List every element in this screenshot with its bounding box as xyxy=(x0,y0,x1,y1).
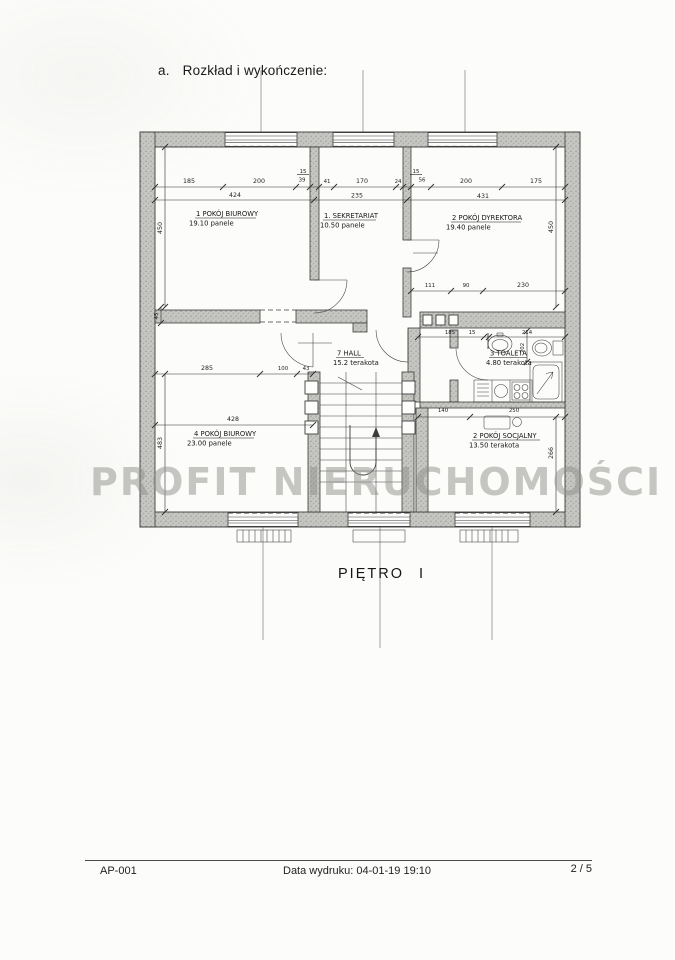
fixtures xyxy=(474,333,563,429)
room-label-title: 2 POKÓJ SOCJALNY xyxy=(473,431,537,440)
dim-label: 185 xyxy=(183,178,195,185)
dim-label: 450 xyxy=(548,221,555,233)
dim-label: 424 xyxy=(229,192,241,199)
room-label-detail: 19.10 panele xyxy=(189,220,234,228)
footer-divider xyxy=(85,860,592,861)
dim-label: 266 xyxy=(548,447,555,459)
dim-label: 24 xyxy=(395,179,402,185)
room-label-title: 1 POKÓJ BIUROWY xyxy=(196,209,259,218)
room-label-title: 2 POKÓJ DYREKTORA xyxy=(452,213,522,222)
floor-plan-drawing: 185 200 15 39 41 170 24 15 56 200 175 42… xyxy=(0,0,675,700)
dim-label: 200 xyxy=(253,178,265,185)
kitchen-sink-icon xyxy=(495,385,508,398)
dim-label: 185 xyxy=(445,330,455,336)
dim-label: 15 xyxy=(413,169,420,175)
dim-label: 450 xyxy=(157,222,164,234)
room-label-detail: 13.50 terakota xyxy=(469,442,519,450)
dim-label: 250 xyxy=(509,408,520,414)
dim-label: 235 xyxy=(351,193,363,200)
room-label-detail: 23.00 panele xyxy=(187,440,232,448)
dim-label: 428 xyxy=(227,416,239,423)
room-label-title: 3 TOALETA xyxy=(490,350,527,358)
dim-label: 111 xyxy=(425,283,435,289)
scanned-document-page: { "document": { "section_heading": {"ind… xyxy=(0,0,675,960)
service-duct xyxy=(449,315,458,325)
toilet-icon xyxy=(533,340,552,356)
interior-walls xyxy=(155,147,565,512)
room-label-title: 4 POKÓJ BIUROWY xyxy=(194,429,257,438)
dim-label: 41 xyxy=(324,179,331,185)
stair-direction-arrow xyxy=(350,425,376,475)
floor-caption: PIĘTRO I xyxy=(338,566,425,582)
dim-label: 170 xyxy=(356,178,368,185)
dim-label: 90 xyxy=(463,283,470,289)
dim-label: 483 xyxy=(157,437,164,449)
radiators xyxy=(237,530,518,542)
dim-label: 140 xyxy=(438,408,449,414)
dim-label: 214 xyxy=(522,330,533,336)
staircase xyxy=(320,372,402,512)
dim-label: 45 xyxy=(154,313,160,320)
dim-label: 431 xyxy=(477,193,489,200)
page-number: 2 / 5 xyxy=(556,863,592,875)
room-label-title: 7 HALL xyxy=(337,350,361,358)
dim-label: 15 xyxy=(300,169,307,175)
dim-label: 285 xyxy=(201,365,213,372)
room-label-title: 1. SEKRETARIAT xyxy=(324,212,379,220)
dim-label: 100 xyxy=(278,366,289,372)
service-duct xyxy=(436,315,445,325)
stair-arrow-head xyxy=(372,427,380,437)
dim-label: 200 xyxy=(460,178,472,185)
dim-label: 15 xyxy=(469,330,476,336)
dim-label: 56 xyxy=(419,178,426,184)
dim-label: 43 xyxy=(303,366,310,372)
dim-label: 230 xyxy=(517,282,529,289)
table-icon xyxy=(484,416,510,429)
dim-label: 175 xyxy=(530,178,542,185)
print-date: Data wydruku: 04-01-19 19:10 xyxy=(283,865,431,877)
room-label-detail: 4.80 terakota xyxy=(486,359,532,367)
kitchenette-counter xyxy=(474,380,532,402)
service-duct xyxy=(423,315,432,325)
room-label-detail: 10.50 panele xyxy=(320,222,365,230)
windows xyxy=(225,133,530,527)
dim-label: 39 xyxy=(299,178,306,184)
room-label-detail: 19.40 panele xyxy=(446,224,491,232)
document-code: AP-001 xyxy=(100,865,137,877)
room-label-detail: 15.2 terakota xyxy=(333,359,379,367)
